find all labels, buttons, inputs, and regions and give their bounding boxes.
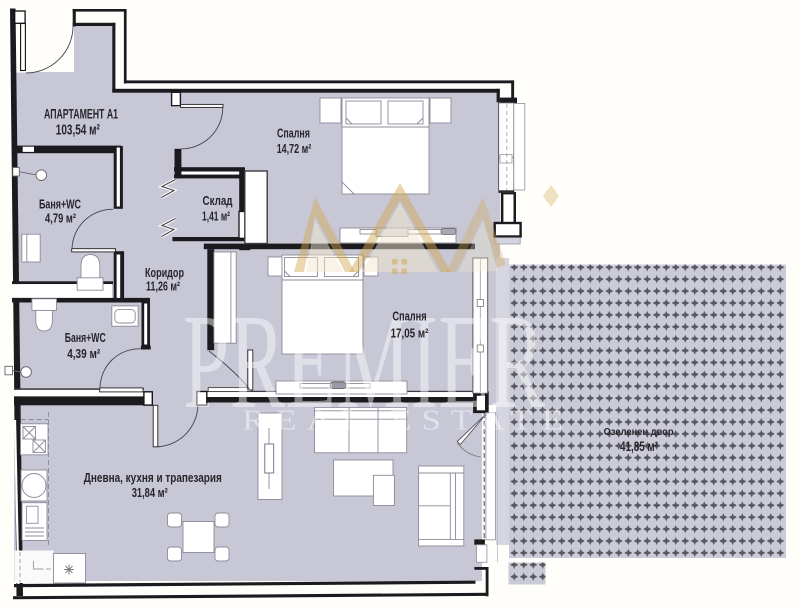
svg-text:Баня+WC: Баня+WC [39,197,81,212]
svg-text:4,39 м²: 4,39 м² [67,347,100,361]
svg-text:REAL ESTATE: REAL ESTATE [242,405,573,437]
svg-text:31,84 м²: 31,84 м² [132,486,168,500]
svg-text:11,26 м²: 11,26 м² [146,279,180,293]
svg-text:41,85 м²: 41,85 м² [620,439,658,454]
svg-text:4,79 м²: 4,79 м² [45,212,76,226]
svg-text:Баня+WC: Баня+WC [65,330,106,345]
svg-text:103,54 м²: 103,54 м² [56,122,100,139]
svg-text:14,72 м²: 14,72 м² [277,142,312,156]
svg-text:АПАРТАМЕНТ А1: АПАРТАМЕНТ А1 [44,106,118,122]
svg-text:1,41 м²: 1,41 м² [202,210,230,224]
svg-text:Спалня: Спалня [277,125,310,140]
svg-text:Склад: Склад [203,193,234,208]
svg-text:Дневна, кухня и трапезария: Дневна, кухня и трапезария [84,470,222,485]
svg-text:Озеленен двор: Озеленен двор [604,427,674,438]
svg-text:Коридор: Коридор [145,265,184,280]
svg-text:17,05 м²: 17,05 м² [391,327,429,341]
svg-text:Спалня: Спалня [392,309,426,324]
